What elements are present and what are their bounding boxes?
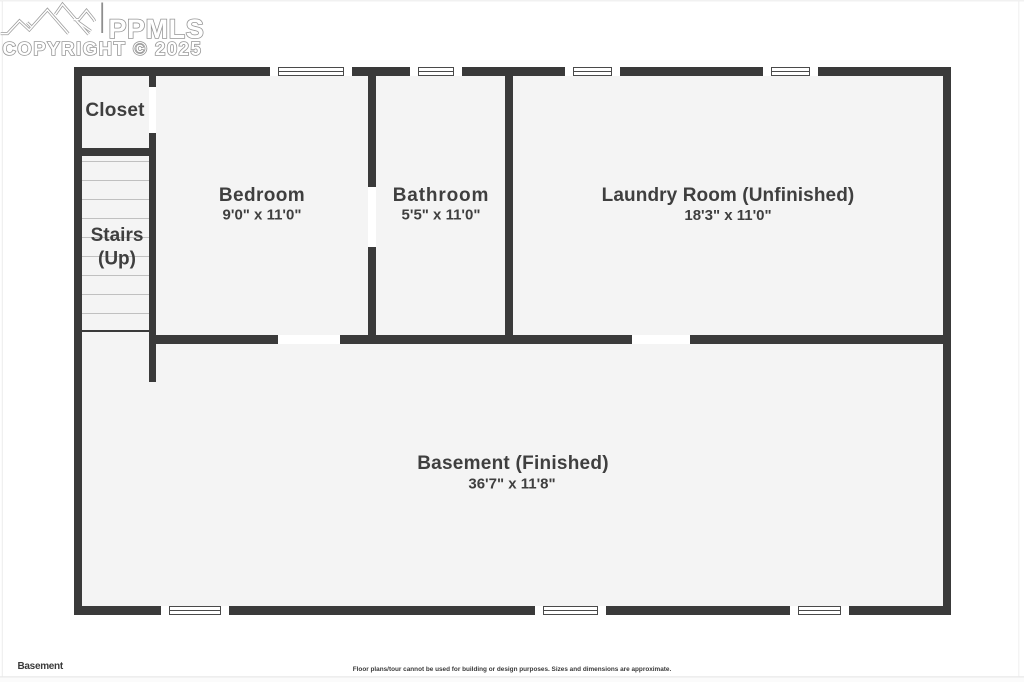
svg-text:COPYRIGHT © 2025: COPYRIGHT © 2025 — [3, 38, 203, 59]
svg-text:Laundry Room (Unfinished): Laundry Room (Unfinished) — [602, 185, 855, 206]
svg-text:Bedroom: Bedroom — [219, 185, 305, 206]
svg-text:Stairs: Stairs — [91, 225, 144, 246]
svg-text:Basement: Basement — [18, 661, 64, 672]
svg-text:36'7" x 11'8": 36'7" x 11'8" — [468, 476, 555, 493]
svg-text:Basement (Finished): Basement (Finished) — [417, 453, 609, 474]
svg-text:18'3" x 11'0": 18'3" x 11'0" — [684, 207, 771, 224]
svg-text:5'5" x 11'0": 5'5" x 11'0" — [402, 207, 481, 224]
svg-text:Floor plans/tour cannot be use: Floor plans/tour cannot be used for buil… — [353, 666, 672, 673]
svg-text:9'0" x 11'0": 9'0" x 11'0" — [223, 207, 302, 224]
svg-text:Bathroom: Bathroom — [393, 185, 490, 206]
svg-text:Closet: Closet — [85, 100, 145, 121]
svg-text:(Up): (Up) — [98, 249, 136, 270]
